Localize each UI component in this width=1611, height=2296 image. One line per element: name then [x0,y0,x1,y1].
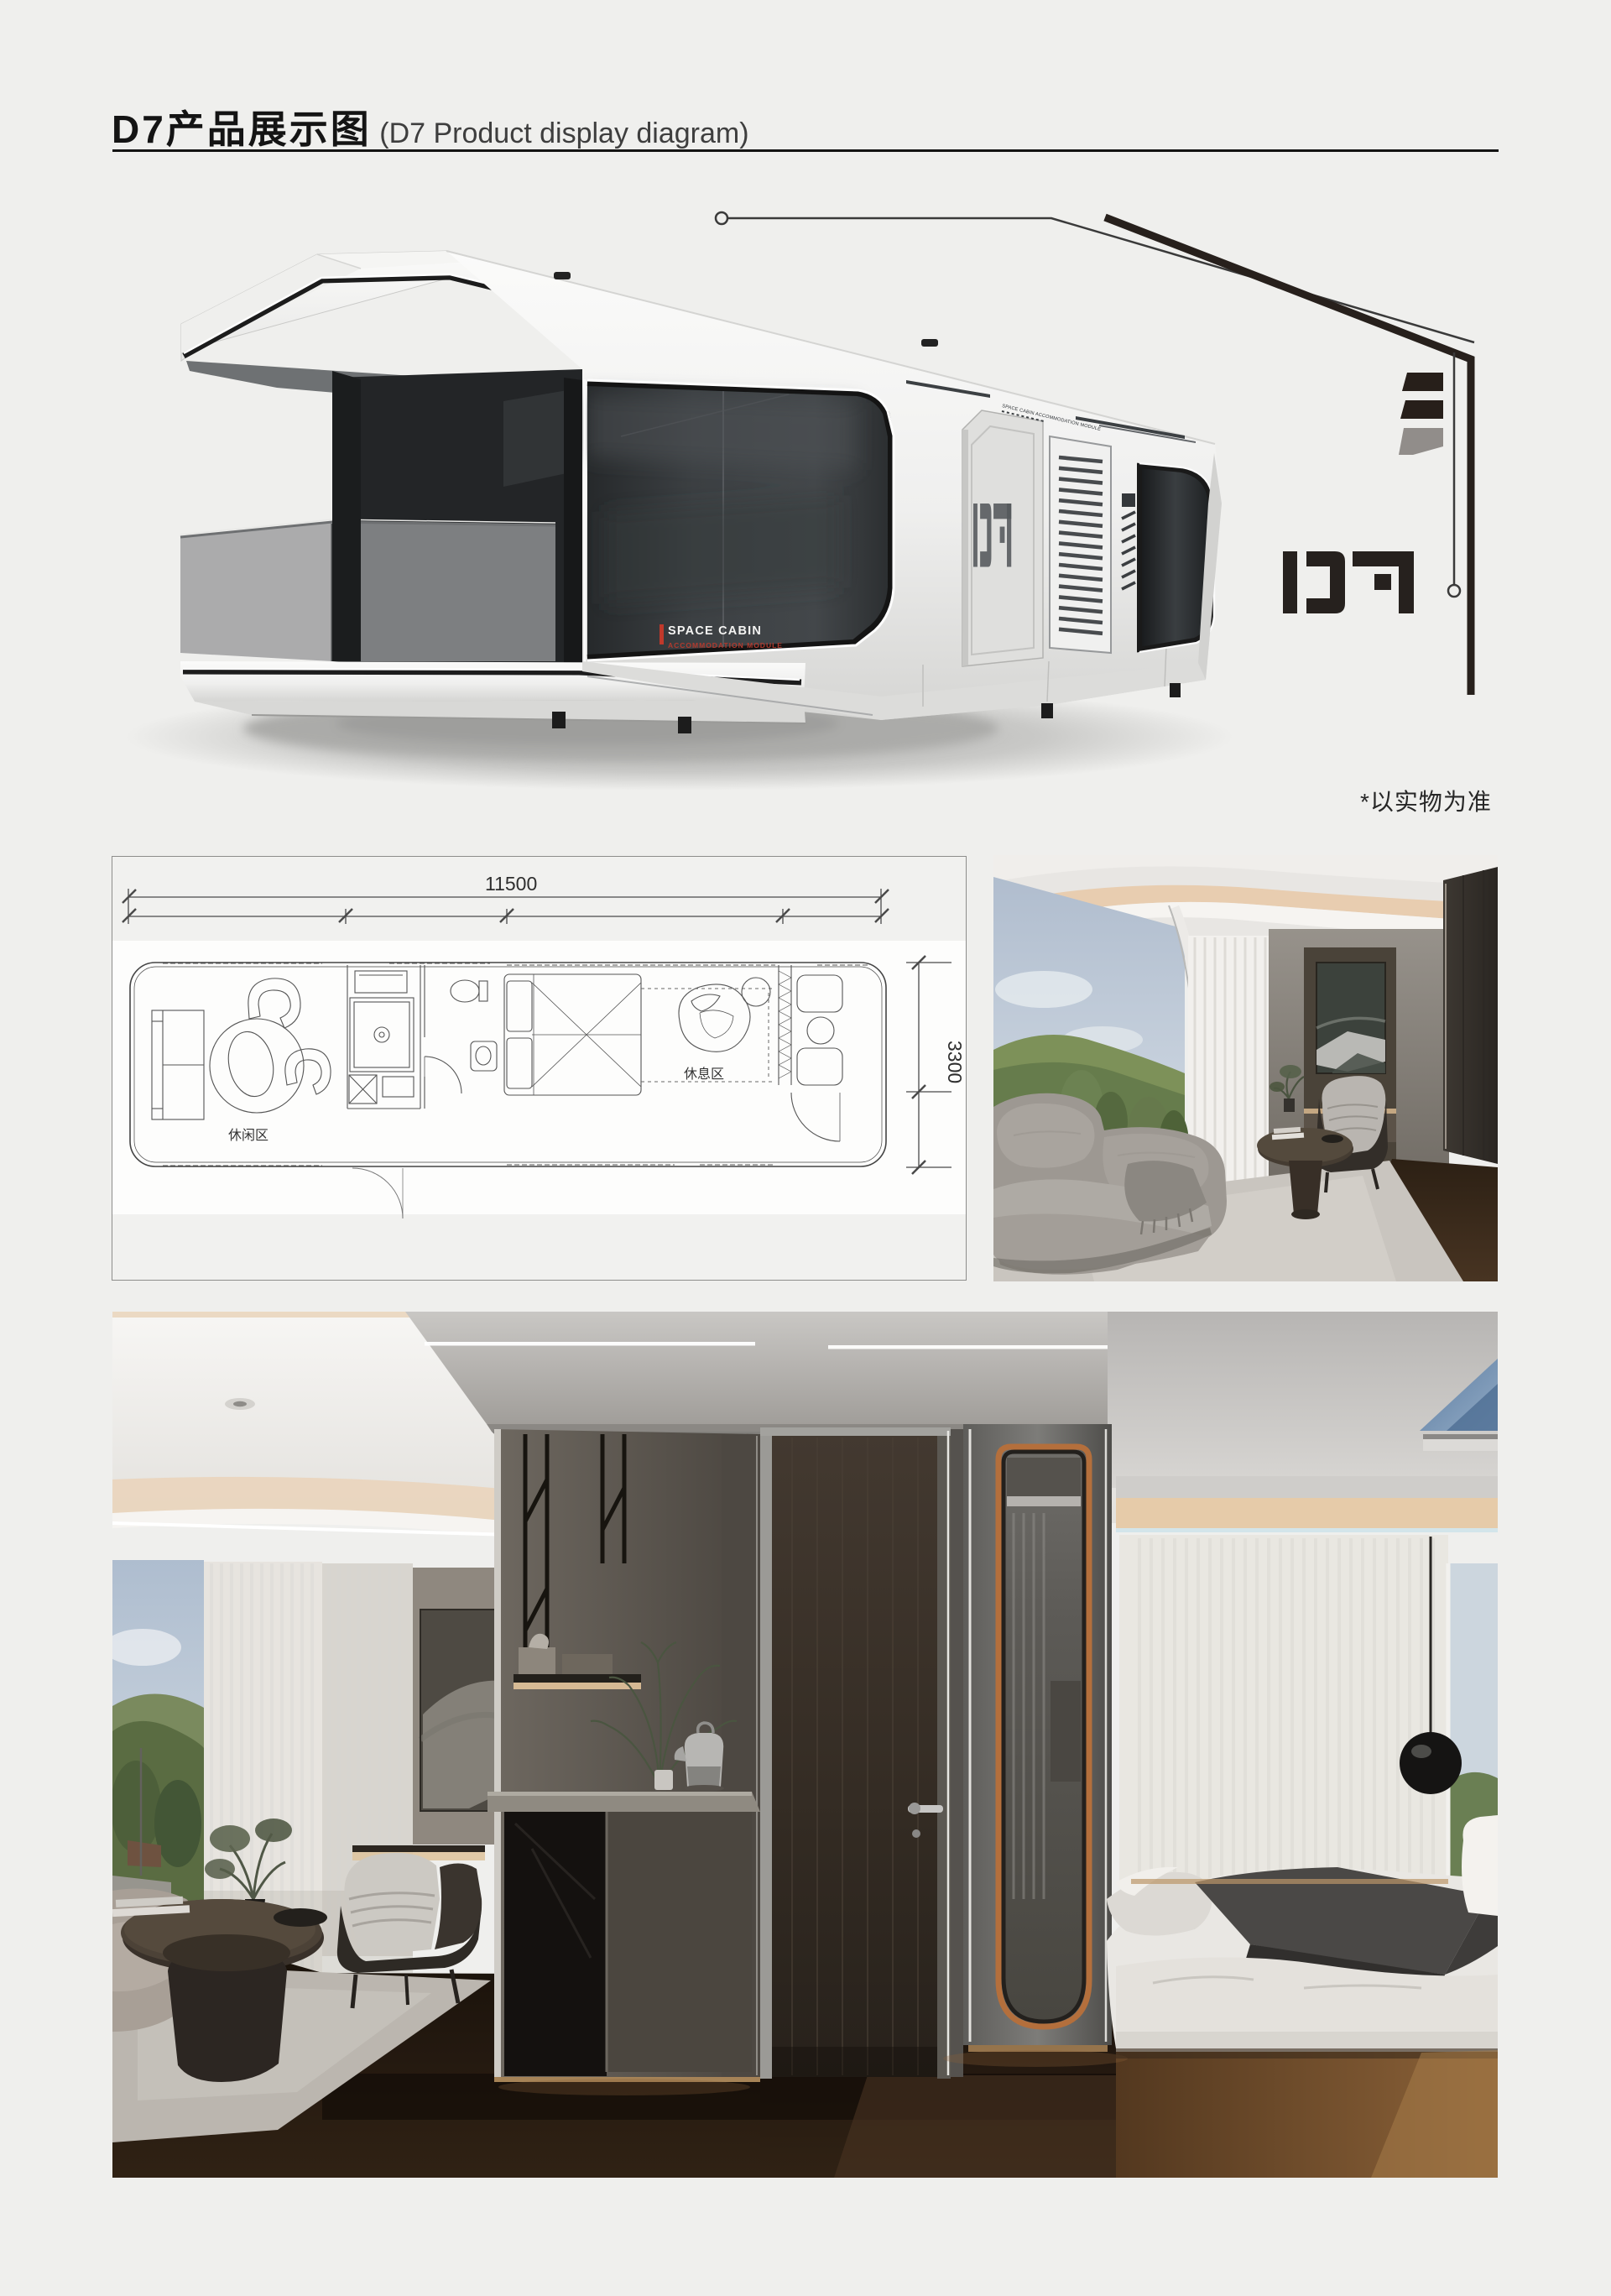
svg-text:SPACE CABIN: SPACE CABIN [668,624,762,638]
svg-text:11500: 11500 [485,873,537,895]
svg-text:ACCOMMODATION MODULE: ACCOMMODATION MODULE [668,641,783,650]
svg-text:休闲区: 休闲区 [228,1128,268,1143]
svg-text:3300: 3300 [944,1041,966,1083]
svg-text:休息区: 休息区 [684,1067,724,1082]
